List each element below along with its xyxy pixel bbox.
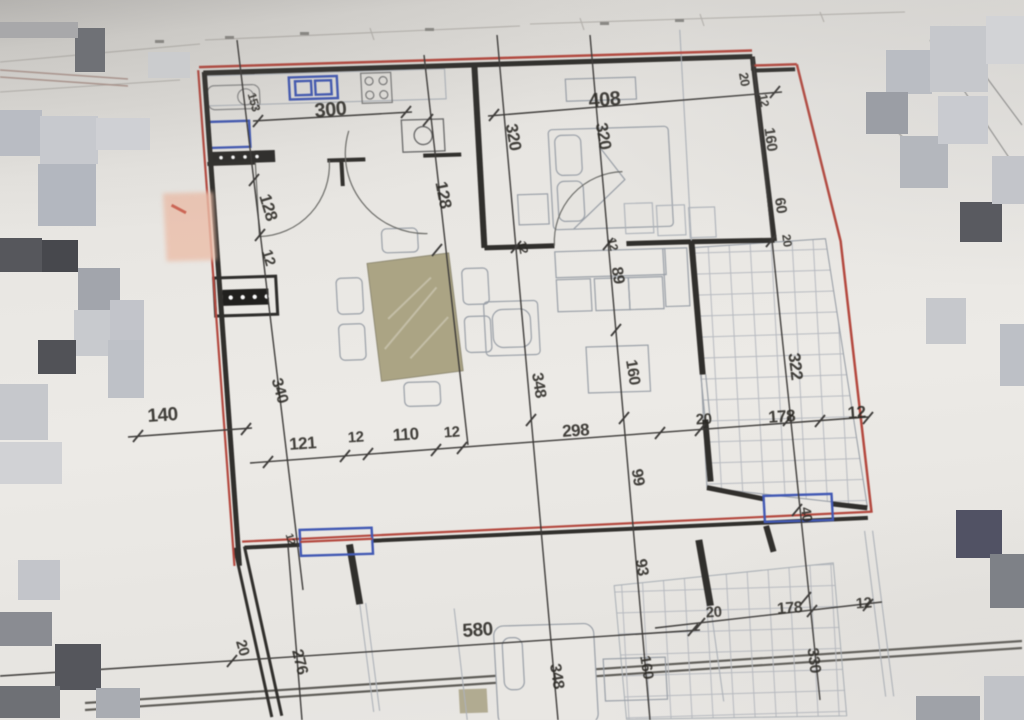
pixelation-block bbox=[984, 676, 1024, 720]
pixelation-block bbox=[916, 696, 980, 720]
pixelation-block bbox=[866, 92, 908, 134]
pixelation-block bbox=[930, 26, 988, 92]
pixelation-block bbox=[148, 52, 190, 78]
pixelation-block bbox=[992, 156, 1024, 204]
pixelation-block bbox=[926, 298, 966, 344]
pixelation-block bbox=[0, 22, 78, 38]
highlight-marker bbox=[163, 192, 217, 262]
dimension-label: 140 bbox=[147, 404, 179, 427]
pixelation-block bbox=[0, 612, 52, 646]
pixelation-block bbox=[38, 164, 96, 226]
dimension-label: 580 bbox=[462, 619, 494, 642]
dimension-label: 12 bbox=[515, 240, 531, 256]
dimension-label: 128 bbox=[432, 180, 456, 210]
pixelation-block bbox=[1000, 324, 1024, 386]
dimension-label: 178 bbox=[777, 599, 804, 618]
dimension-label: 12 bbox=[258, 248, 279, 268]
floor-plan-photo: 3001534083203202012160602012812128121289… bbox=[0, 0, 1024, 720]
dimension-label: 12 bbox=[347, 428, 364, 446]
dimension-label: 128 bbox=[255, 192, 281, 223]
pixelation-block bbox=[110, 300, 144, 342]
pixelation-block bbox=[42, 240, 78, 272]
dimension-label: 20 bbox=[232, 638, 253, 658]
dimension-label: 40 bbox=[798, 506, 816, 523]
dimension-label: 153 bbox=[245, 91, 264, 113]
pixelation-block bbox=[956, 510, 1002, 558]
pixelation-block bbox=[0, 442, 62, 484]
pixelation-block bbox=[990, 554, 1024, 608]
bath-sink bbox=[209, 121, 250, 148]
dimension-label: 60 bbox=[771, 196, 790, 214]
dimension-label: 110 bbox=[392, 424, 419, 445]
pixelation-block bbox=[0, 384, 48, 440]
pixelation-block bbox=[96, 118, 150, 150]
dimension-label: 408 bbox=[588, 88, 622, 113]
pixelation-block bbox=[108, 340, 144, 398]
pixelation-block bbox=[38, 340, 76, 374]
dimension-label: 340 bbox=[268, 376, 291, 405]
pixelation-block bbox=[886, 50, 932, 94]
pixelation-block bbox=[986, 16, 1024, 64]
dimension-label: 348 bbox=[528, 372, 549, 400]
dimension-label: 330 bbox=[803, 647, 823, 675]
pixelation-block bbox=[960, 202, 1002, 242]
dimension-label: 99 bbox=[628, 468, 648, 488]
dimension-label: 93 bbox=[632, 558, 652, 578]
pixelation-block bbox=[55, 644, 101, 690]
lower-table bbox=[459, 689, 488, 714]
dimension-label: 121 bbox=[289, 433, 317, 454]
pixelation-block bbox=[96, 688, 140, 718]
dimension-label: 160 bbox=[622, 359, 643, 387]
dimension-label: 276 bbox=[288, 648, 311, 677]
dimension-label: 300 bbox=[314, 98, 348, 123]
dimension-label: 322 bbox=[784, 352, 806, 381]
dimension-label: 20 bbox=[705, 603, 722, 621]
pixelation-block bbox=[0, 110, 42, 156]
pixelation-block bbox=[0, 686, 60, 718]
sofa bbox=[481, 248, 695, 396]
dimension-label: 12 bbox=[847, 402, 866, 422]
dimension-label: 160 bbox=[760, 127, 780, 153]
dimension-label: 20 bbox=[695, 410, 712, 428]
dimension-label: 12 bbox=[443, 423, 460, 441]
dimension-label: 20 bbox=[736, 71, 753, 87]
pixelation-block bbox=[75, 28, 105, 72]
pixelation-block bbox=[938, 96, 988, 144]
dimension-label: 178 bbox=[768, 406, 796, 427]
pixelation-block bbox=[0, 238, 42, 272]
dimension-label: 298 bbox=[562, 420, 590, 441]
dimension-label: 12 bbox=[855, 594, 872, 612]
dimension-label: 89 bbox=[608, 266, 628, 286]
stove bbox=[361, 72, 393, 103]
dimension-label: 320 bbox=[502, 122, 525, 152]
pixelation-block bbox=[18, 560, 60, 600]
pixelation-block bbox=[40, 116, 98, 164]
dimension-label: 12 bbox=[756, 93, 772, 108]
washing-machine bbox=[401, 119, 445, 152]
